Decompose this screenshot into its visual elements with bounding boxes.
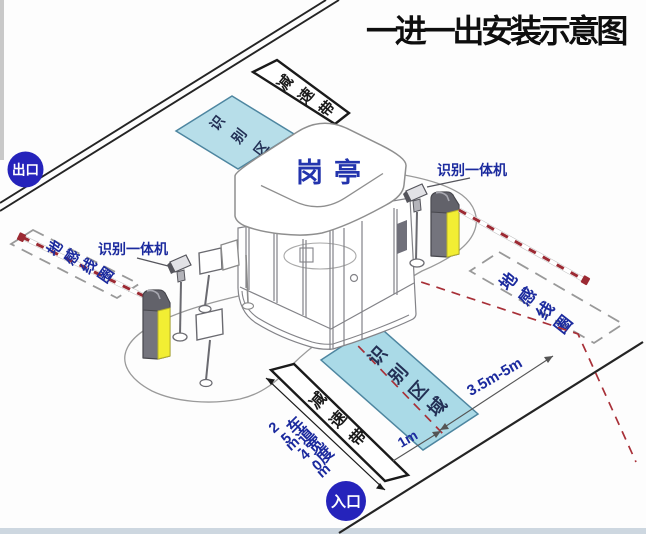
svg-text:入口: 入口: [331, 494, 361, 511]
svg-text:出口: 出口: [12, 162, 39, 178]
svg-text:一进一出安装示意图: 一进一出安装示意图: [366, 13, 626, 49]
svg-text:岗亭: 岗亭: [296, 157, 372, 188]
svg-text:识别一体机: 识别一体机: [98, 241, 168, 257]
svg-text:识别一体机: 识别一体机: [437, 162, 507, 178]
